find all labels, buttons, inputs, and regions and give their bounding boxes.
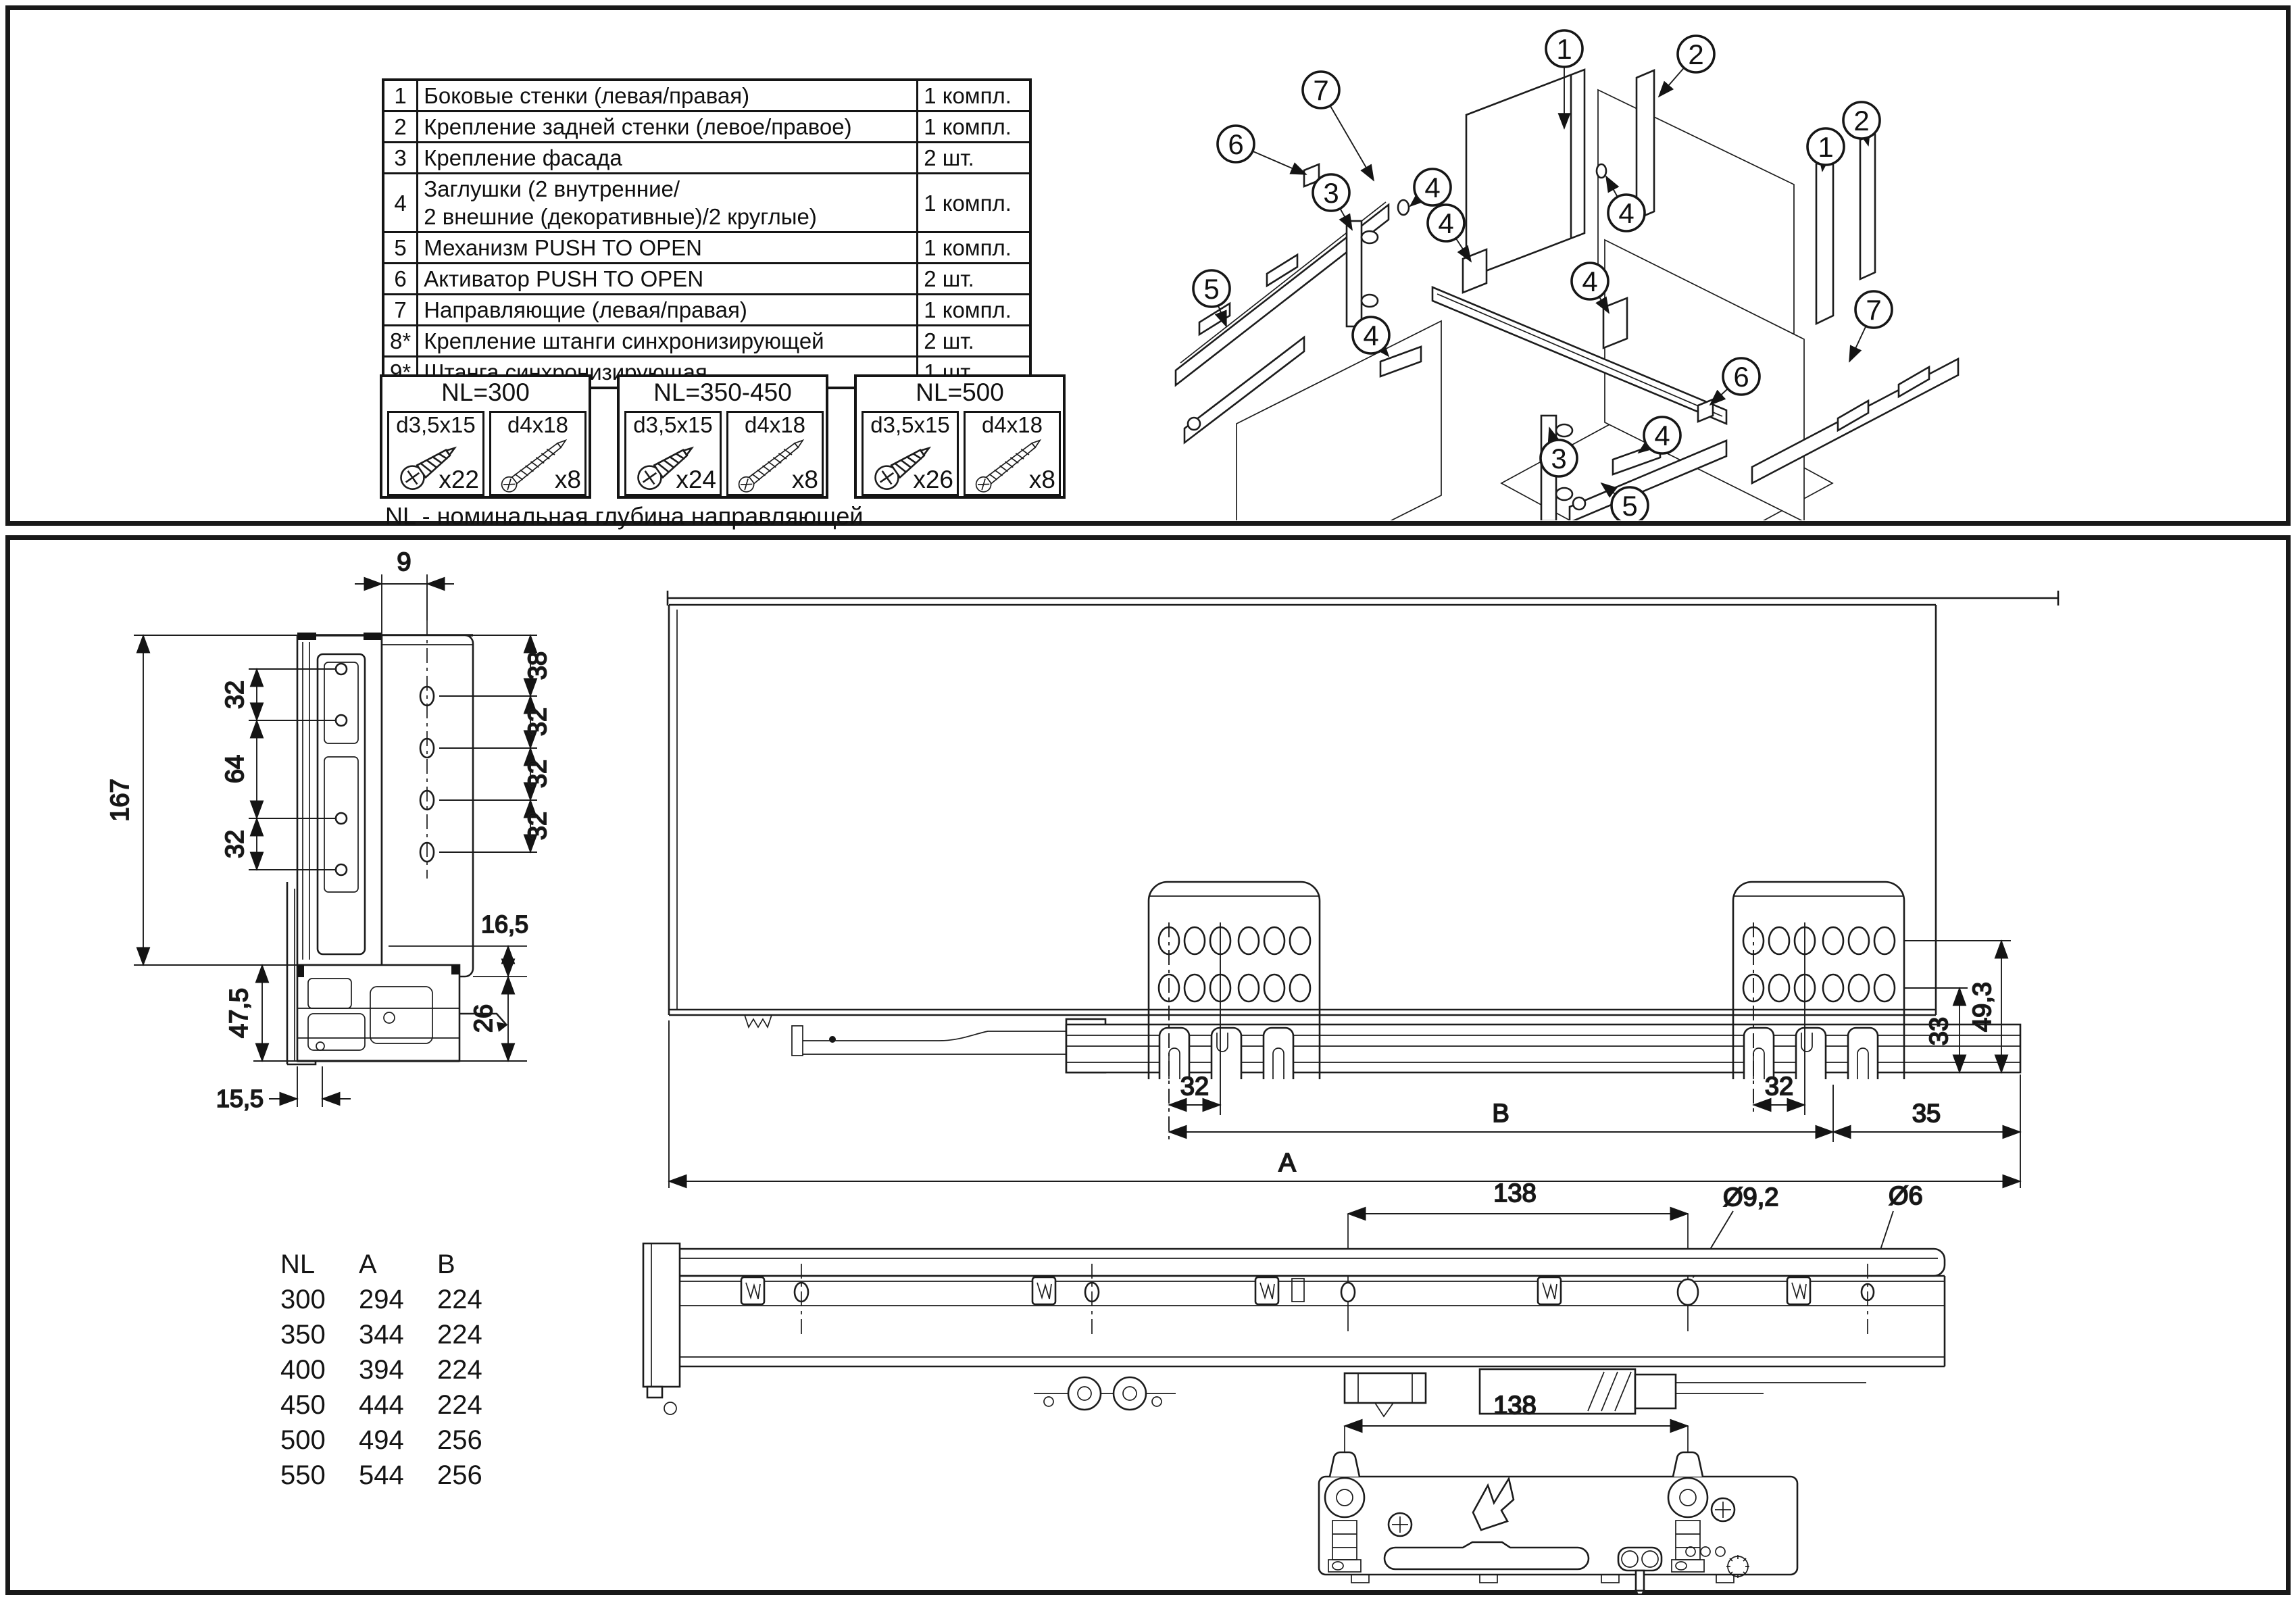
- screw-count: x8: [1029, 466, 1055, 494]
- size-row: 550544256: [280, 1458, 516, 1493]
- underside-drawing: [1319, 1452, 1797, 1594]
- dimension-drawings-panel: 9 167 32 64 32 38 32 32 32 16,5: [5, 535, 2291, 1595]
- a: 494: [359, 1423, 437, 1458]
- screw-slot: d3,5x15 x24: [624, 411, 722, 496]
- b: 224: [437, 1352, 516, 1387]
- part-qty: 2 шт.: [918, 264, 1030, 295]
- dim-38: 38: [524, 651, 552, 680]
- dim-33: 33: [1925, 1017, 1953, 1045]
- part-num: 2: [383, 112, 418, 143]
- main-side-view: 32 32 B 35 A 33 49,3: [642, 581, 2068, 1189]
- screw-slot: d3,5x15 x22: [387, 411, 484, 496]
- dia-9-2: Ø9,2: [1723, 1183, 1778, 1212]
- kit-title: NL=500: [857, 377, 1063, 408]
- dim-9: 9: [397, 548, 411, 576]
- dim-32: 32: [524, 812, 552, 840]
- part-name: Крепление задней стенки (левое/правое): [418, 112, 918, 143]
- a: 294: [359, 1282, 437, 1317]
- dim-16-5: 16,5: [481, 910, 528, 938]
- dim-49-3: 49,3: [1968, 982, 1997, 1032]
- part-num: 3: [383, 143, 418, 174]
- dim-32-left: 32: [1180, 1072, 1209, 1101]
- screw-slot: d4x18 x8: [964, 411, 1061, 496]
- part-name: Крепление штанги синхронизирующей: [418, 326, 918, 357]
- svg-text:4: 4: [1424, 172, 1440, 203]
- dia-6: Ø6: [1889, 1182, 1923, 1210]
- col-nl: NL: [280, 1247, 359, 1282]
- kit-title: NL=300: [382, 377, 589, 408]
- screw-kit-nl300: NL=300 d3,5x15 x22 d4x18 x8: [380, 374, 591, 499]
- part-num: 7: [383, 295, 418, 326]
- col-b: B: [437, 1247, 516, 1282]
- part-qty: 2 шт.: [918, 143, 1030, 174]
- part-name: Направляющие (левая/правая): [418, 295, 918, 326]
- underside-dimensions: 138: [1345, 1391, 1688, 1468]
- svg-text:4: 4: [1582, 266, 1597, 297]
- size-row: 450444224: [280, 1387, 516, 1423]
- kit-title: NL=350-450: [620, 377, 826, 408]
- svg-text:5: 5: [1203, 273, 1219, 305]
- part-qty: 2 шт.: [918, 326, 1030, 357]
- svg-text:3: 3: [1323, 177, 1339, 209]
- profile-drawing: [287, 620, 527, 1064]
- dim-138: 138: [1493, 1179, 1536, 1208]
- col-a: A: [359, 1247, 437, 1282]
- screw-slot: d4x18 x8: [726, 411, 824, 496]
- callout-1: 1: [1807, 128, 1844, 171]
- part-name: Боковые стенки (левая/правая): [418, 80, 918, 112]
- part-name: Крепление фасада: [418, 143, 918, 174]
- rear-bracket-right: [1733, 882, 1904, 1079]
- svg-text:7: 7: [1866, 294, 1881, 326]
- parts-table: 1Боковые стенки (левая/правая)1 компл. 2…: [382, 78, 1032, 389]
- instruction-sheet: { "header": { "bullets": ["- полное выдв…: [0, 0, 2296, 1605]
- screw-kit-nl500: NL=500 d3,5x15 x26 d4x18 x8: [854, 374, 1066, 499]
- table-row: 6Активатор PUSH TO OPEN2 шт.: [383, 264, 1030, 295]
- table-row: 5Механизм PUSH TO OPEN1 компл.: [383, 232, 1030, 264]
- callout-2: 2: [1659, 36, 1714, 97]
- part-qty: 1 компл.: [918, 295, 1030, 326]
- b: 256: [437, 1458, 516, 1493]
- screw-kit-nl350-450: NL=350-450 d3,5x15 x24 d4x18 x8: [617, 374, 828, 499]
- callout-4: 4: [1410, 169, 1451, 206]
- part-name: Механизм PUSH TO OPEN: [418, 232, 918, 264]
- size-row: 500494256: [280, 1423, 516, 1458]
- svg-text:5: 5: [1622, 490, 1637, 520]
- nl-note: NL - номинальная глубина направляющей: [385, 502, 863, 530]
- svg-text:4: 4: [1438, 207, 1453, 239]
- dim-15-5: 15,5: [216, 1085, 264, 1112]
- nl: 300: [280, 1282, 359, 1317]
- size-table: NL A B 300294224 350344224 400394224 450…: [280, 1247, 516, 1493]
- svg-text:6: 6: [1228, 128, 1243, 160]
- screw-slot: d4x18 x8: [489, 411, 587, 496]
- dim-138-bottom: 138: [1493, 1391, 1536, 1420]
- a: 444: [359, 1387, 437, 1423]
- exploded-assembly-diagram: 7 1 2 6 3 4 4 1 2 4 5 4 4 7 6 4 3 5: [1166, 10, 1970, 520]
- part-name: Активатор PUSH TO OPEN: [418, 264, 918, 295]
- part-name: Заглушки (2 внутренние/ 2 внешние (декор…: [418, 174, 918, 232]
- side-section-view: 9 167 32 64 32 38 32 32 32 16,5: [95, 541, 608, 1149]
- screw-count: x24: [676, 466, 716, 494]
- b: 224: [437, 1282, 516, 1317]
- a: 394: [359, 1352, 437, 1387]
- b: 224: [437, 1387, 516, 1423]
- svg-text:4: 4: [1363, 320, 1378, 351]
- part-num: 5: [383, 232, 418, 264]
- callout-4: 4: [1428, 205, 1471, 262]
- svg-text:3: 3: [1551, 443, 1566, 474]
- dim-32: 32: [524, 708, 552, 736]
- callout-6: 6: [1218, 126, 1306, 174]
- dim-32: 32: [221, 681, 249, 709]
- part-num: 8*: [383, 326, 418, 357]
- part-num: 6: [383, 264, 418, 295]
- screw-count: x26: [913, 466, 953, 494]
- part-qty: 1 компл.: [918, 174, 1030, 232]
- nl: 350: [280, 1317, 359, 1352]
- a: 344: [359, 1317, 437, 1352]
- screw-count: x22: [439, 466, 479, 494]
- svg-text:1: 1: [1818, 131, 1833, 163]
- dim-35: 35: [1912, 1100, 1941, 1128]
- dim-32-right: 32: [1765, 1072, 1793, 1101]
- part-num: 1: [383, 80, 418, 112]
- part-qty: 1 компл.: [918, 112, 1030, 143]
- rear-bracket-left: [1149, 882, 1320, 1079]
- svg-text:4: 4: [1654, 420, 1670, 451]
- nl: 400: [280, 1352, 359, 1387]
- dim-167: 167: [106, 779, 134, 821]
- table-row: 1Боковые стенки (левая/правая)1 компл.: [383, 80, 1030, 112]
- dim-64: 64: [221, 755, 249, 783]
- b: 256: [437, 1423, 516, 1458]
- table-row: 3Крепление фасада2 шт.: [383, 143, 1030, 174]
- part-qty: 1 компл.: [918, 80, 1030, 112]
- table-row: 4Заглушки (2 внутренние/ 2 внешние (деко…: [383, 174, 1030, 232]
- svg-text:2: 2: [1688, 39, 1703, 70]
- top-panel: - полное выдвижение - максимальная нагру…: [5, 5, 2291, 526]
- nl: 500: [280, 1423, 359, 1458]
- callout-7: 7: [1303, 72, 1374, 180]
- callout-7: 7: [1849, 291, 1892, 362]
- screw-slot: d3,5x15 x26: [862, 411, 959, 496]
- part-qty: 1 компл.: [918, 232, 1030, 264]
- rail-front-cap: [643, 1243, 680, 1414]
- a: 544: [359, 1458, 437, 1493]
- size-row: 350344224: [280, 1317, 516, 1352]
- table-row: 2Крепление задней стенки (левое/правое)1…: [383, 112, 1030, 143]
- svg-text:2: 2: [1853, 105, 1869, 137]
- size-row: 300294224: [280, 1282, 516, 1317]
- svg-text:4: 4: [1618, 197, 1634, 229]
- sync-pin: [1618, 1548, 1662, 1594]
- callout-4: 4: [1572, 263, 1609, 313]
- dim-26: 26: [470, 1004, 498, 1033]
- dim-B: B: [1492, 1100, 1509, 1128]
- svg-text:7: 7: [1313, 74, 1328, 106]
- screw-count: x8: [792, 466, 818, 494]
- dim-32: 32: [524, 760, 552, 788]
- screw-count: x8: [555, 466, 581, 494]
- dim-32: 32: [221, 830, 249, 858]
- part-num: 4: [383, 174, 418, 232]
- drawer-wall-drawing: [668, 591, 2058, 1079]
- nl: 450: [280, 1387, 359, 1423]
- dim-A: A: [1278, 1149, 1296, 1177]
- svg-text:1: 1: [1556, 33, 1572, 65]
- table-row: 8*Крепление штанги синхронизирующей2 шт.: [383, 326, 1030, 357]
- table-row: 7Направляющие (левая/правая)1 компл.: [383, 295, 1030, 326]
- nl: 550: [280, 1458, 359, 1493]
- callout-4: 4: [1353, 317, 1389, 356]
- rail-underside-view: 138: [1250, 1391, 1858, 1594]
- size-row: 400394224: [280, 1352, 516, 1387]
- svg-text:6: 6: [1733, 361, 1749, 393]
- dim-47-5: 47,5: [225, 988, 253, 1038]
- size-header-row: NL A B: [280, 1247, 516, 1282]
- b: 224: [437, 1317, 516, 1352]
